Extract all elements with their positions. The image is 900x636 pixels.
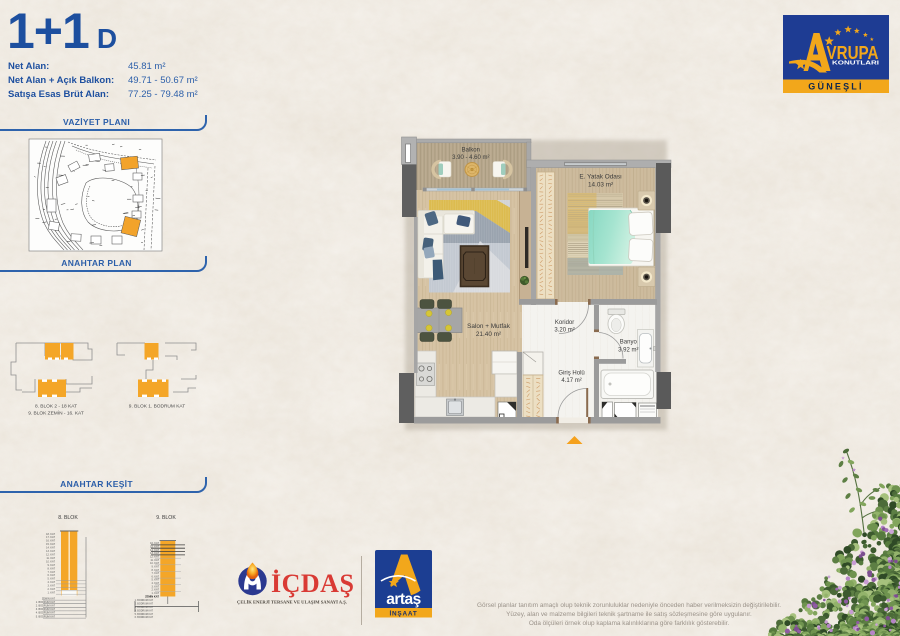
svg-text:E. Yatak Odası: E. Yatak Odası (579, 174, 622, 181)
svg-text:GÜNEŞLİ: GÜNEŞLİ (808, 82, 863, 92)
svg-text:8. BLOK: 8. BLOK (58, 515, 78, 521)
svg-text:Giriş Holü: Giriş Holü (558, 370, 584, 376)
svg-text:3.20 m²: 3.20 m² (554, 328, 574, 334)
svg-text:3.92 m²: 3.92 m² (618, 347, 638, 353)
svg-text:6. BODRUM KAT: 6. BODRUM KAT (135, 616, 154, 619)
svg-text:9. BLOK ZEMİN - 16. KAT: 9. BLOK ZEMİN - 16. KAT (28, 410, 84, 417)
svg-text:artaş: artaş (386, 591, 421, 608)
svg-text:İÇDAŞ: İÇDAŞ (271, 569, 354, 598)
svg-text:21.40 m²: 21.40 m² (476, 331, 501, 338)
svg-text:İNŞAAT: İNŞAAT (389, 609, 417, 618)
svg-text:KONUTLARI: KONUTLARI (832, 61, 880, 67)
svg-text:3.90 - 4.60 m²: 3.90 - 4.60 m² (452, 155, 489, 161)
svg-text:ÇELİK ENERJİ TERSANE VE ULAŞIM: ÇELİK ENERJİ TERSANE VE ULAŞIM SANAYİ A.… (237, 600, 347, 605)
svg-text:9. BLOK 1. BODRUM KAT: 9. BLOK 1. BODRUM KAT (129, 404, 185, 410)
svg-text:Salon + Mutfak: Salon + Mutfak (467, 323, 511, 330)
svg-text:Koridor: Koridor (555, 320, 574, 326)
svg-text:14.03 m²: 14.03 m² (588, 182, 613, 189)
svg-text:8. BLOK 2 - 18 KAT: 8. BLOK 2 - 18 KAT (35, 404, 77, 410)
svg-text:4.17 m²: 4.17 m² (561, 378, 581, 384)
svg-text:Banyo: Banyo (620, 340, 638, 346)
svg-text:9. BLOK: 9. BLOK (156, 515, 176, 521)
svg-text:Balkon: Balkon (462, 148, 480, 154)
svg-text:1. KAT: 1. KAT (48, 592, 56, 595)
